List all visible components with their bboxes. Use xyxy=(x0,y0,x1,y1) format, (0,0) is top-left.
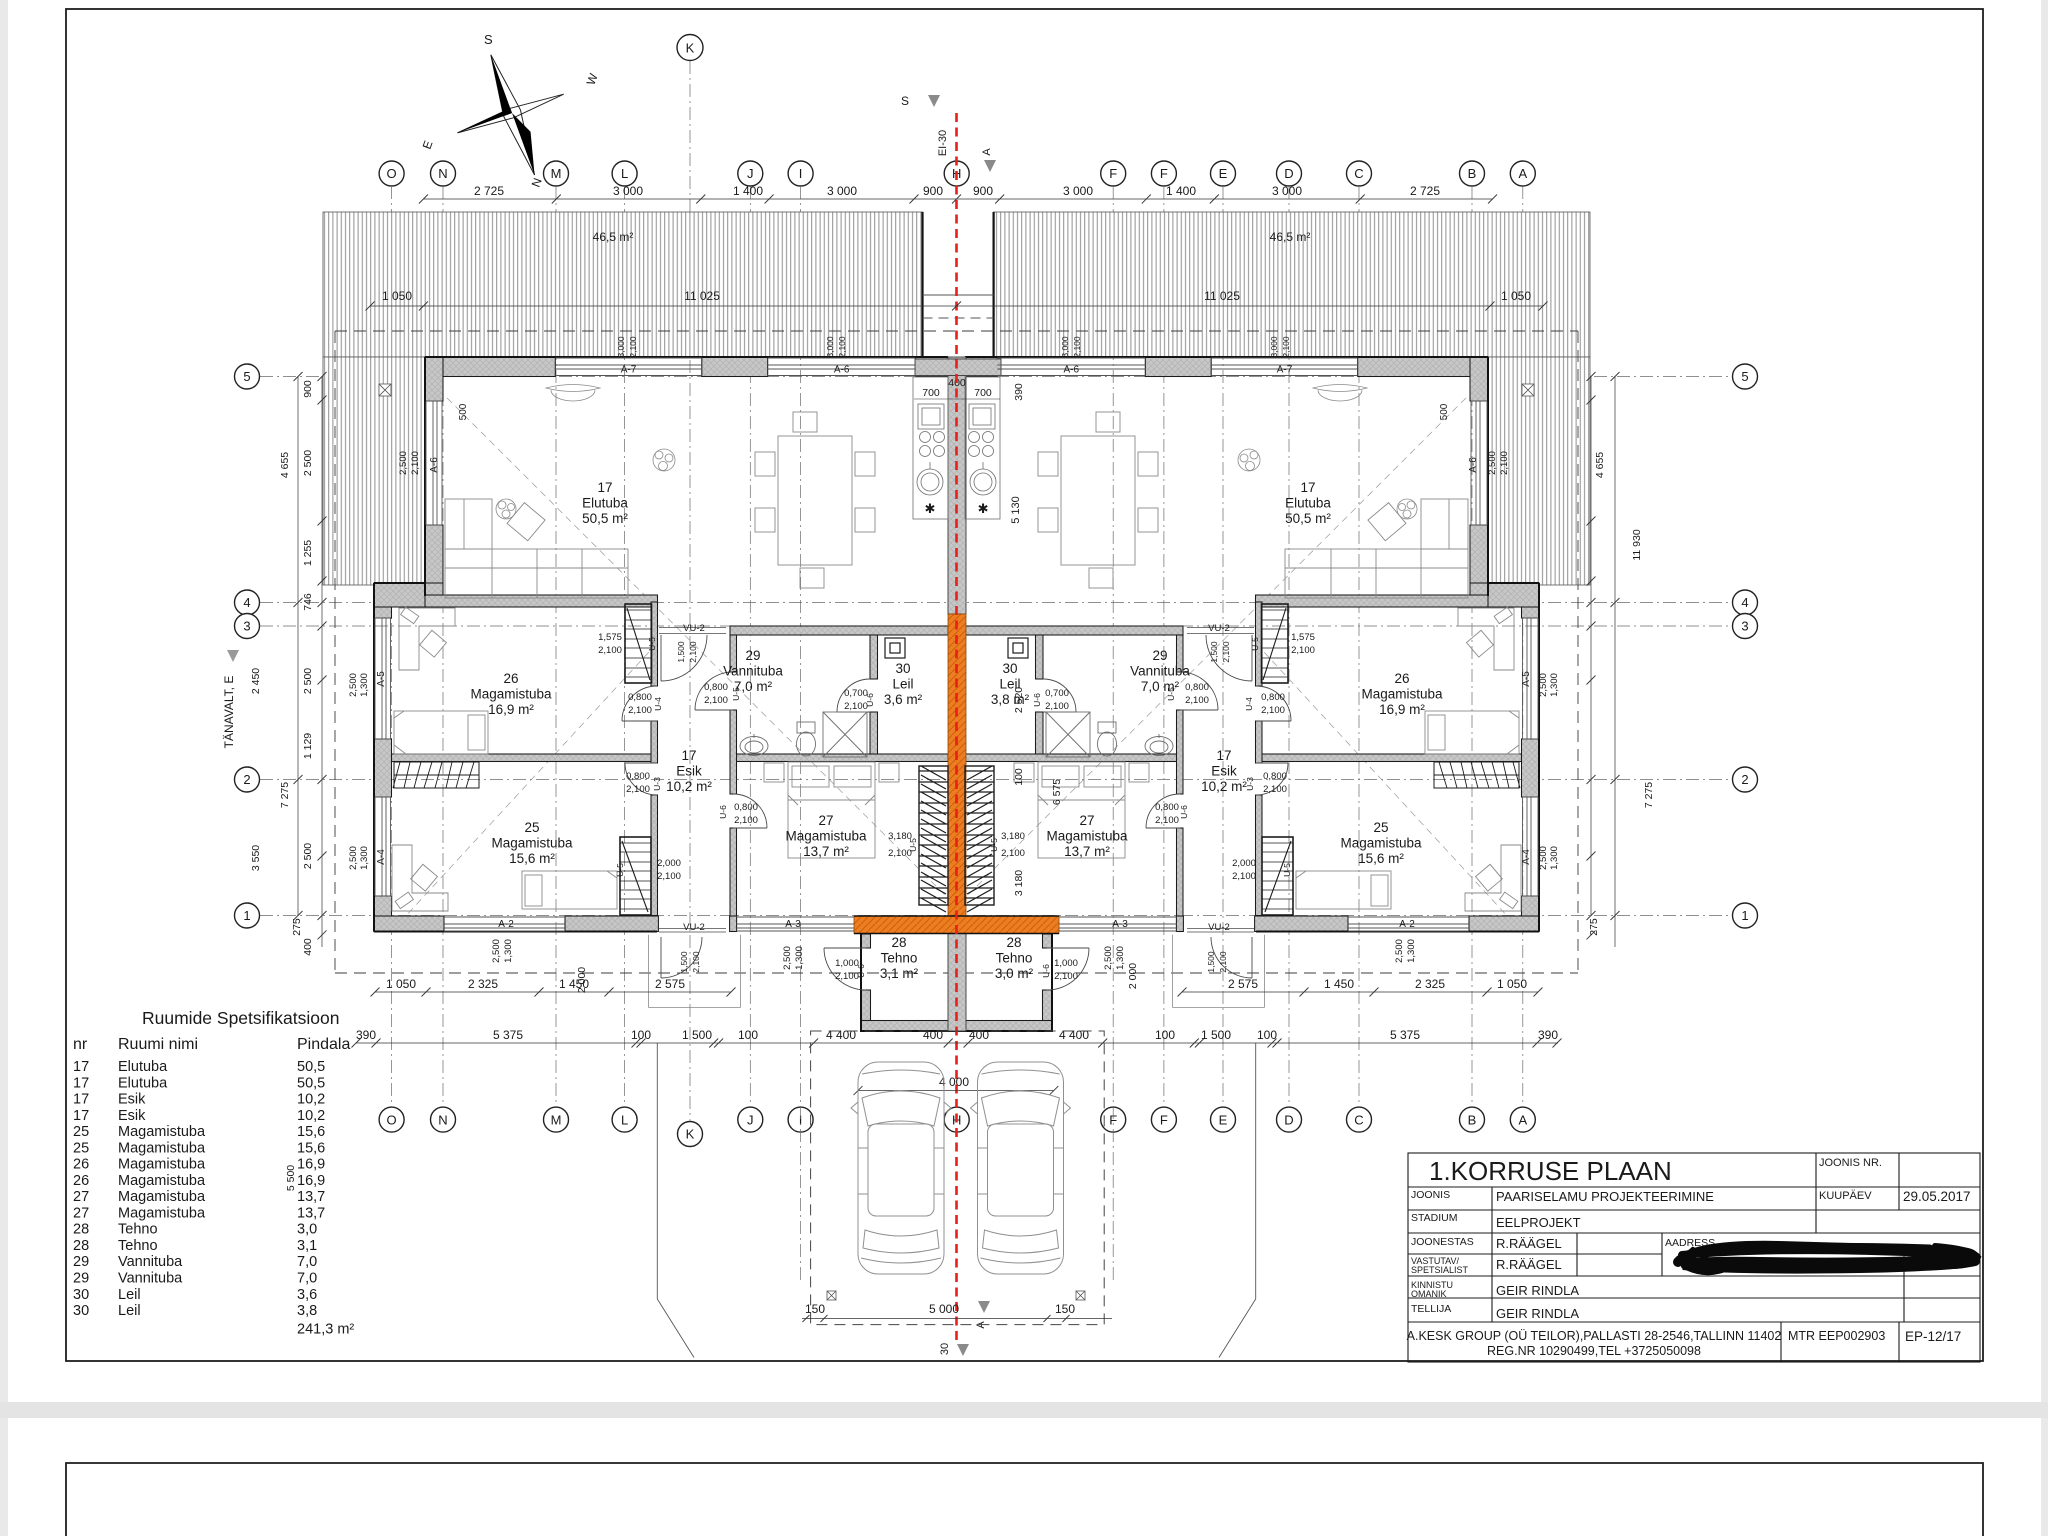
svg-text:Ruumi nimi: Ruumi nimi xyxy=(118,1036,198,1053)
svg-text:2,500: 2,500 xyxy=(1538,673,1549,697)
svg-text:S: S xyxy=(901,94,909,108)
svg-text:2 325: 2 325 xyxy=(1415,977,1445,991)
svg-text:3 000: 3 000 xyxy=(613,184,643,198)
svg-text:Esik: Esik xyxy=(118,1092,146,1108)
svg-text:17: 17 xyxy=(681,748,696,763)
svg-text:0,800: 0,800 xyxy=(734,802,758,813)
svg-text:3,1 m²: 3,1 m² xyxy=(880,966,919,981)
svg-text:A-7: A-7 xyxy=(621,365,637,376)
svg-text:C: C xyxy=(1354,166,1363,181)
svg-text:A: A xyxy=(1518,1112,1527,1127)
svg-text:B: B xyxy=(1468,166,1477,181)
svg-text:1,300: 1,300 xyxy=(503,939,514,963)
svg-text:10,2: 10,2 xyxy=(297,1092,325,1108)
svg-text:1,500: 1,500 xyxy=(679,951,689,973)
svg-text:2,100: 2,100 xyxy=(691,951,701,973)
svg-text:30: 30 xyxy=(1002,661,1017,676)
svg-text:7 275: 7 275 xyxy=(1643,782,1655,808)
svg-text:R.RÄÄGEL: R.RÄÄGEL xyxy=(1496,1257,1562,1272)
svg-text:U-6: U-6 xyxy=(1179,805,1189,819)
svg-text:26: 26 xyxy=(73,1157,89,1173)
svg-text:Esik: Esik xyxy=(118,1108,146,1124)
svg-text:2,100: 2,100 xyxy=(1045,701,1069,712)
svg-text:J: J xyxy=(747,166,754,181)
svg-text:Magamistuba: Magamistuba xyxy=(118,1157,206,1173)
svg-text:1 255: 1 255 xyxy=(302,540,314,566)
svg-text:29: 29 xyxy=(73,1254,89,1270)
svg-text:390: 390 xyxy=(1013,383,1025,401)
svg-text:MTR EEP002903: MTR EEP002903 xyxy=(1788,1329,1885,1343)
svg-text:275: 275 xyxy=(291,918,303,936)
svg-text:2,100: 2,100 xyxy=(1218,951,1228,973)
svg-text:1 050: 1 050 xyxy=(1497,977,1527,991)
svg-text:3,0 m²: 3,0 m² xyxy=(995,966,1034,981)
svg-text:2,500: 2,500 xyxy=(782,946,793,970)
svg-text:5 375: 5 375 xyxy=(493,1028,523,1042)
svg-text:100: 100 xyxy=(1155,1028,1175,1042)
svg-text:A-5: A-5 xyxy=(376,671,387,687)
svg-text:1 450: 1 450 xyxy=(1324,977,1354,991)
svg-text:Tehno: Tehno xyxy=(881,951,918,966)
svg-text:900: 900 xyxy=(973,184,993,198)
svg-text:Vannituba: Vannituba xyxy=(723,664,783,679)
svg-text:1 050: 1 050 xyxy=(382,289,412,303)
svg-text:JOONIS: JOONIS xyxy=(1411,1189,1450,1201)
svg-text:A-6: A-6 xyxy=(1468,457,1479,473)
svg-text:28: 28 xyxy=(73,1238,89,1254)
svg-text:2,100: 2,100 xyxy=(1232,871,1256,882)
svg-text:A-2: A-2 xyxy=(498,919,514,930)
svg-text:5 500: 5 500 xyxy=(285,1165,297,1191)
svg-text:VU-2: VU-2 xyxy=(683,922,705,933)
svg-text:✱: ✱ xyxy=(925,501,936,516)
svg-text:✱: ✱ xyxy=(977,501,988,516)
svg-text:N: N xyxy=(438,1112,447,1127)
svg-text:50,5 m²: 50,5 m² xyxy=(582,511,628,526)
svg-text:7,0: 7,0 xyxy=(297,1271,317,1287)
svg-text:GEIR RINDLA: GEIR RINDLA xyxy=(1496,1306,1579,1321)
svg-text:Pindala: Pindala xyxy=(297,1036,350,1053)
svg-text:2 575: 2 575 xyxy=(1228,977,1258,991)
svg-text:10,2 m²: 10,2 m² xyxy=(666,779,712,794)
svg-text:13,7: 13,7 xyxy=(297,1189,325,1205)
svg-text:400: 400 xyxy=(302,938,314,956)
svg-text:100: 100 xyxy=(1257,1028,1277,1042)
svg-text:3,0: 3,0 xyxy=(297,1222,317,1238)
svg-text:N: N xyxy=(438,166,447,181)
svg-text:Magamistuba: Magamistuba xyxy=(1340,836,1422,851)
svg-text:2: 2 xyxy=(1741,772,1748,787)
svg-text:2,100: 2,100 xyxy=(1499,451,1510,475)
svg-text:900: 900 xyxy=(923,184,943,198)
svg-text:1,300: 1,300 xyxy=(794,946,805,970)
svg-text:2,100: 2,100 xyxy=(734,815,758,826)
svg-text:2,500: 2,500 xyxy=(1538,846,1549,870)
svg-text:150: 150 xyxy=(805,1302,825,1316)
svg-text:0,800: 0,800 xyxy=(1263,771,1287,782)
svg-text:0,800: 0,800 xyxy=(628,692,652,703)
svg-text:U-6: U-6 xyxy=(856,964,866,978)
svg-text:13,7 m²: 13,7 m² xyxy=(803,844,849,859)
svg-text:0,800: 0,800 xyxy=(1185,682,1209,693)
svg-text:17: 17 xyxy=(73,1075,89,1091)
svg-text:U-4: U-4 xyxy=(1244,697,1254,711)
svg-text:17: 17 xyxy=(73,1092,89,1108)
svg-text:15,6 m²: 15,6 m² xyxy=(1358,851,1404,866)
svg-text:2,100: 2,100 xyxy=(1072,336,1082,358)
svg-text:B: B xyxy=(1468,1112,1477,1127)
svg-text:17: 17 xyxy=(1300,480,1315,495)
svg-text:4: 4 xyxy=(243,595,250,610)
svg-text:3,000: 3,000 xyxy=(1269,336,1279,358)
svg-text:U-5: U-5 xyxy=(731,687,741,701)
svg-text:2,100: 2,100 xyxy=(1185,695,1209,706)
svg-text:U-6: U-6 xyxy=(718,805,728,819)
svg-text:5 130: 5 130 xyxy=(1010,496,1022,524)
svg-text:25: 25 xyxy=(73,1140,89,1156)
svg-text:Magamistuba: Magamistuba xyxy=(118,1205,206,1221)
svg-text:U-3: U-3 xyxy=(652,777,662,791)
svg-text:1,500: 1,500 xyxy=(676,641,686,663)
svg-text:4 400: 4 400 xyxy=(1059,1028,1089,1042)
svg-text:Tehno: Tehno xyxy=(996,951,1033,966)
svg-text:1,000: 1,000 xyxy=(1054,958,1078,969)
svg-text:EI-30: EI-30 xyxy=(937,130,949,156)
svg-text:nr: nr xyxy=(73,1036,88,1053)
svg-text:U-5: U-5 xyxy=(615,863,625,877)
svg-text:D: D xyxy=(1284,166,1293,181)
svg-text:REG.NR 10290499,TEL +372505009: REG.NR 10290499,TEL +3725050098 xyxy=(1487,1344,1701,1358)
svg-text:25: 25 xyxy=(1373,820,1388,835)
svg-text:1,300: 1,300 xyxy=(1549,673,1560,697)
svg-text:3,6 m²: 3,6 m² xyxy=(884,692,923,707)
svg-text:2,100: 2,100 xyxy=(628,705,652,716)
svg-text:2,100: 2,100 xyxy=(1155,815,1179,826)
svg-text:2,100: 2,100 xyxy=(598,645,622,656)
svg-text:2,100: 2,100 xyxy=(1261,705,1285,716)
svg-text:2,100: 2,100 xyxy=(1221,641,1231,663)
svg-text:A-3: A-3 xyxy=(1112,919,1128,930)
svg-text:2,500: 2,500 xyxy=(348,846,359,870)
svg-text:3 180: 3 180 xyxy=(1013,870,1025,896)
svg-text:2,100: 2,100 xyxy=(626,784,650,795)
svg-text:A-6: A-6 xyxy=(834,365,850,376)
svg-text:Elutuba: Elutuba xyxy=(582,496,628,511)
svg-text:Magamistuba: Magamistuba xyxy=(118,1140,206,1156)
svg-text:EP-12/17: EP-12/17 xyxy=(1905,1329,1961,1344)
svg-text:Vannituba: Vannituba xyxy=(1130,664,1190,679)
svg-text:2 500: 2 500 xyxy=(302,450,314,476)
svg-text:C: C xyxy=(1354,1112,1363,1127)
svg-text:1,575: 1,575 xyxy=(598,632,622,643)
svg-text:0,800: 0,800 xyxy=(1155,802,1179,813)
svg-text:VU-2: VU-2 xyxy=(1208,623,1230,634)
svg-text:VU-2: VU-2 xyxy=(683,623,705,634)
svg-text:1,300: 1,300 xyxy=(1549,846,1560,870)
svg-text:1 050: 1 050 xyxy=(386,977,416,991)
svg-text:I: I xyxy=(799,166,803,181)
svg-text:28: 28 xyxy=(73,1222,89,1238)
svg-text:EELPROJEKT: EELPROJEKT xyxy=(1496,1215,1581,1230)
svg-text:28: 28 xyxy=(1006,935,1021,950)
svg-text:A-7: A-7 xyxy=(1277,365,1293,376)
svg-text:2,500: 2,500 xyxy=(348,673,359,697)
svg-text:2,000: 2,000 xyxy=(657,858,681,869)
svg-text:2,100: 2,100 xyxy=(628,336,638,358)
svg-text:2,100: 2,100 xyxy=(688,641,698,663)
svg-text:Magamistuba: Magamistuba xyxy=(118,1124,206,1140)
svg-text:F: F xyxy=(1160,1112,1168,1127)
svg-text:Ruumide Spetsifikatsioon: Ruumide Spetsifikatsioon xyxy=(142,1008,339,1028)
svg-text:10,2: 10,2 xyxy=(297,1108,325,1124)
svg-text:26: 26 xyxy=(503,671,518,686)
svg-text:1,500: 1,500 xyxy=(1206,951,1216,973)
svg-text:11 930: 11 930 xyxy=(1631,529,1643,560)
svg-text:2,100: 2,100 xyxy=(1001,848,1025,859)
svg-text:Vannituba: Vannituba xyxy=(118,1271,183,1287)
svg-text:7 275: 7 275 xyxy=(279,782,291,808)
svg-text:30: 30 xyxy=(73,1287,89,1303)
svg-text:3,1: 3,1 xyxy=(297,1238,317,1254)
svg-text:2 500: 2 500 xyxy=(302,843,314,869)
svg-text:K: K xyxy=(686,1127,695,1142)
svg-text:3,180: 3,180 xyxy=(1001,831,1025,842)
svg-text:U-5: U-5 xyxy=(1250,637,1260,651)
svg-text:400: 400 xyxy=(923,1028,943,1042)
svg-text:A: A xyxy=(1518,166,1527,181)
svg-text:16,9 m²: 16,9 m² xyxy=(1379,702,1425,717)
svg-text:15,6 m²: 15,6 m² xyxy=(509,851,555,866)
svg-text:TÄNAVALT, E: TÄNAVALT, E xyxy=(222,676,236,749)
svg-text:U-5: U-5 xyxy=(1282,863,1292,877)
svg-text:3,000: 3,000 xyxy=(616,336,626,358)
svg-text:16,9: 16,9 xyxy=(297,1157,325,1173)
svg-text:1 400: 1 400 xyxy=(1166,184,1196,198)
svg-text:PAARISELAMU PROJEKTEERIMINE: PAARISELAMU PROJEKTEERIMINE xyxy=(1496,1189,1714,1204)
svg-text:U-3: U-3 xyxy=(1245,777,1255,791)
svg-text:1,300: 1,300 xyxy=(359,673,370,697)
svg-text:4 400: 4 400 xyxy=(826,1028,856,1042)
svg-text:29.05.2017: 29.05.2017 xyxy=(1903,1189,1971,1204)
svg-text:M: M xyxy=(551,1112,562,1127)
svg-text:6 575: 6 575 xyxy=(1051,779,1063,805)
svg-text:500: 500 xyxy=(1439,403,1450,420)
svg-text:3: 3 xyxy=(243,619,250,634)
svg-text:VU-2: VU-2 xyxy=(1208,922,1230,933)
svg-text:Leil: Leil xyxy=(118,1287,141,1303)
svg-text:700: 700 xyxy=(974,387,992,399)
svg-text:50,5 m²: 50,5 m² xyxy=(1285,511,1331,526)
svg-text:29: 29 xyxy=(745,648,760,663)
svg-text:2,100: 2,100 xyxy=(837,336,847,358)
svg-text:O: O xyxy=(387,1112,397,1127)
svg-text:275: 275 xyxy=(1588,918,1600,936)
svg-text:U-6: U-6 xyxy=(1041,964,1051,978)
svg-text:13,7: 13,7 xyxy=(297,1205,325,1221)
svg-text:Magamistuba: Magamistuba xyxy=(1361,687,1443,702)
svg-text:1,300: 1,300 xyxy=(1115,946,1126,970)
svg-text:2 520: 2 520 xyxy=(1013,687,1025,713)
svg-text:Magamistuba: Magamistuba xyxy=(118,1189,206,1205)
svg-text:A.KESK GROUP (OÜ TEILOR),PALLA: A.KESK GROUP (OÜ TEILOR),PALLASTI 28-254… xyxy=(1407,1329,1782,1343)
svg-text:5 375: 5 375 xyxy=(1390,1028,1420,1042)
svg-text:100: 100 xyxy=(1013,768,1025,786)
svg-text:3,6: 3,6 xyxy=(297,1287,317,1303)
svg-text:A-2: A-2 xyxy=(1399,919,1415,930)
svg-text:1 500: 1 500 xyxy=(682,1028,712,1042)
svg-text:2 575: 2 575 xyxy=(655,977,685,991)
svg-text:2,100: 2,100 xyxy=(410,451,421,475)
svg-text:U-5: U-5 xyxy=(647,637,657,651)
svg-text:2 450: 2 450 xyxy=(250,668,262,694)
svg-text:46,5 m²: 46,5 m² xyxy=(1270,230,1311,244)
svg-text:F: F xyxy=(1109,166,1117,181)
svg-text:26: 26 xyxy=(73,1173,89,1189)
svg-text:A-5: A-5 xyxy=(1521,671,1532,687)
svg-text:L: L xyxy=(621,166,628,181)
svg-text:JOONIS NR.: JOONIS NR. xyxy=(1819,1157,1882,1169)
svg-text:A-6: A-6 xyxy=(1064,365,1080,376)
svg-text:Elutuba: Elutuba xyxy=(118,1075,168,1091)
svg-text:0,700: 0,700 xyxy=(1045,688,1069,699)
svg-text:Elutuba: Elutuba xyxy=(118,1059,168,1075)
svg-text:JOONESTAS: JOONESTAS xyxy=(1411,1236,1474,1248)
svg-text:50,5: 50,5 xyxy=(297,1075,325,1091)
svg-text:1 400: 1 400 xyxy=(733,184,763,198)
svg-text:241,3 m²: 241,3 m² xyxy=(297,1321,354,1337)
svg-text:U-6: U-6 xyxy=(1032,693,1042,707)
svg-text:4 655: 4 655 xyxy=(279,452,291,478)
svg-text:2,100: 2,100 xyxy=(1054,971,1078,982)
svg-text:16,9: 16,9 xyxy=(297,1173,325,1189)
svg-text:S: S xyxy=(484,32,493,47)
svg-text:3 000: 3 000 xyxy=(1063,184,1093,198)
svg-text:27: 27 xyxy=(73,1189,89,1205)
svg-text:0,800: 0,800 xyxy=(1261,692,1285,703)
svg-text:Esik: Esik xyxy=(1211,764,1237,779)
svg-text:2,100: 2,100 xyxy=(657,871,681,882)
svg-text:2 325: 2 325 xyxy=(468,977,498,991)
svg-text:SPETSIALIST: SPETSIALIST xyxy=(1411,1265,1469,1275)
svg-text:27: 27 xyxy=(73,1205,89,1221)
svg-text:16,9 m²: 16,9 m² xyxy=(488,702,534,717)
svg-text:25: 25 xyxy=(524,820,539,835)
svg-text:2 500: 2 500 xyxy=(302,668,314,694)
svg-text:11 025: 11 025 xyxy=(684,289,720,303)
svg-text:Leil: Leil xyxy=(118,1303,141,1319)
svg-text:A: A xyxy=(981,148,993,156)
svg-text:3,8: 3,8 xyxy=(297,1303,317,1319)
svg-text:1,300: 1,300 xyxy=(1406,939,1417,963)
svg-text:M: M xyxy=(551,166,562,181)
svg-text:D: D xyxy=(1284,1112,1293,1127)
svg-text:OMANIK: OMANIK xyxy=(1411,1289,1447,1299)
svg-text:4 655: 4 655 xyxy=(1594,452,1606,478)
svg-text:A-6: A-6 xyxy=(429,457,440,473)
svg-text:390: 390 xyxy=(1538,1028,1558,1042)
svg-text:400: 400 xyxy=(969,1028,989,1042)
svg-text:3 550: 3 550 xyxy=(250,845,262,871)
svg-text:7,0: 7,0 xyxy=(297,1254,317,1270)
svg-text:3 000: 3 000 xyxy=(827,184,857,198)
svg-text:2,500: 2,500 xyxy=(1103,946,1114,970)
svg-text:15,6: 15,6 xyxy=(297,1124,325,1140)
svg-text:E: E xyxy=(1219,1112,1228,1127)
svg-text:2,500: 2,500 xyxy=(398,451,409,475)
svg-text:1.KORRUSE PLAAN: 1.KORRUSE PLAAN xyxy=(1429,1156,1672,1186)
svg-text:700: 700 xyxy=(922,387,940,399)
svg-text:1 129: 1 129 xyxy=(302,733,314,759)
svg-text:3: 3 xyxy=(1741,619,1748,634)
svg-text:2,500: 2,500 xyxy=(491,939,502,963)
svg-text:Magamistuba: Magamistuba xyxy=(118,1173,206,1189)
svg-text:2 000: 2 000 xyxy=(1127,963,1139,989)
svg-text:30: 30 xyxy=(895,661,910,676)
svg-text:Elutuba: Elutuba xyxy=(1285,496,1331,511)
svg-text:0,800: 0,800 xyxy=(626,771,650,782)
svg-text:A-4: A-4 xyxy=(1521,849,1532,865)
svg-text:27: 27 xyxy=(818,813,833,828)
svg-text:1 050: 1 050 xyxy=(1501,289,1531,303)
svg-text:Magamistuba: Magamistuba xyxy=(470,687,552,702)
svg-text:2: 2 xyxy=(243,772,250,787)
svg-text:U-5: U-5 xyxy=(1166,687,1176,701)
svg-text:Tehno: Tehno xyxy=(118,1238,158,1254)
svg-text:1: 1 xyxy=(1741,908,1748,923)
svg-text:TELLIJA: TELLIJA xyxy=(1411,1303,1451,1315)
svg-text:100: 100 xyxy=(631,1028,651,1042)
svg-text:46,5 m²: 46,5 m² xyxy=(593,230,634,244)
svg-text:Magamistuba: Magamistuba xyxy=(491,836,573,851)
svg-text:2 725: 2 725 xyxy=(1410,184,1440,198)
svg-text:Leil: Leil xyxy=(892,677,913,692)
svg-text:K: K xyxy=(686,40,695,55)
svg-text:17: 17 xyxy=(73,1059,89,1075)
svg-text:U-5: U-5 xyxy=(989,838,999,852)
svg-text:2 000: 2 000 xyxy=(576,967,588,993)
svg-text:J: J xyxy=(747,1112,754,1127)
svg-text:900: 900 xyxy=(302,380,314,398)
svg-text:1 500: 1 500 xyxy=(1201,1028,1231,1042)
svg-text:746: 746 xyxy=(302,593,314,611)
svg-text:15,6: 15,6 xyxy=(297,1140,325,1156)
svg-text:U-4: U-4 xyxy=(653,697,663,711)
svg-text:3,000: 3,000 xyxy=(1060,336,1070,358)
svg-text:Magamistuba: Magamistuba xyxy=(1046,829,1128,844)
svg-text:E: E xyxy=(1219,166,1228,181)
svg-text:17: 17 xyxy=(73,1108,89,1124)
svg-text:50,5: 50,5 xyxy=(297,1059,325,1075)
svg-text:390: 390 xyxy=(356,1028,376,1042)
svg-text:100: 100 xyxy=(738,1028,758,1042)
svg-text:R.RÄÄGEL: R.RÄÄGEL xyxy=(1496,1236,1562,1251)
svg-text:STADIUM: STADIUM xyxy=(1411,1212,1457,1224)
svg-text:150: 150 xyxy=(1055,1302,1075,1316)
svg-text:17: 17 xyxy=(1216,748,1231,763)
svg-text:1: 1 xyxy=(243,908,250,923)
svg-text:500: 500 xyxy=(458,403,469,420)
svg-text:13,7 m²: 13,7 m² xyxy=(1064,844,1110,859)
svg-text:25: 25 xyxy=(73,1124,89,1140)
svg-text:30: 30 xyxy=(73,1303,89,1319)
svg-text:29: 29 xyxy=(1152,648,1167,663)
svg-text:29: 29 xyxy=(73,1271,89,1287)
svg-text:2,100: 2,100 xyxy=(704,695,728,706)
svg-text:2,500: 2,500 xyxy=(1394,939,1405,963)
svg-text:Esik: Esik xyxy=(676,764,702,779)
svg-text:5 000: 5 000 xyxy=(929,1302,959,1316)
svg-text:4: 4 xyxy=(1741,595,1748,610)
